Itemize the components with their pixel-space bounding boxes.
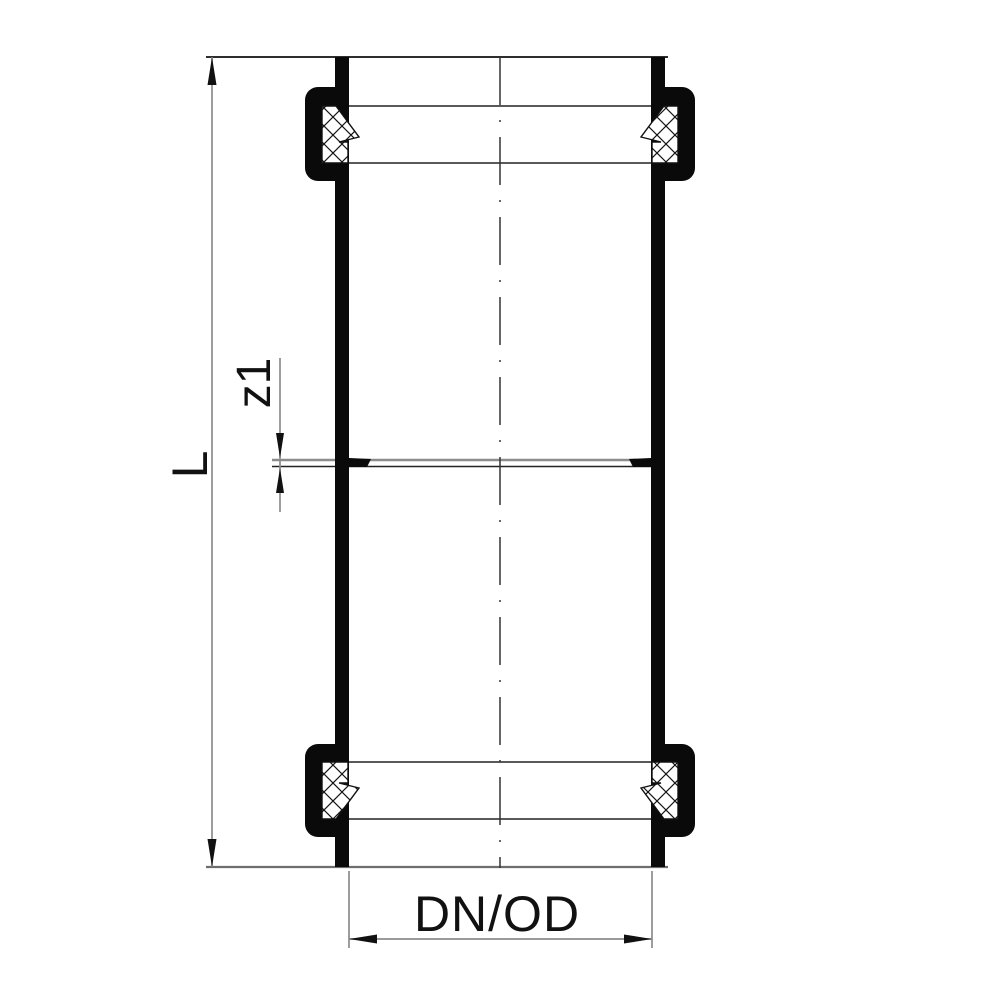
dimension-z1: z1	[228, 358, 284, 512]
dimension-dn-od: DN/OD	[349, 871, 652, 948]
l-arrow-top	[208, 57, 217, 85]
drawing-canvas: L z1 DN/OD	[0, 0, 1000, 1000]
label-overall-length: L	[162, 450, 218, 479]
gasket-bottom-right	[641, 762, 678, 819]
z1-arrow-lower	[276, 468, 284, 493]
z1-arrow-upper	[276, 433, 284, 458]
dnod-arrow-right	[624, 935, 652, 944]
l-arrow-bottom	[208, 839, 217, 867]
dnod-arrow-left	[349, 935, 377, 944]
stop-ridge-left	[349, 458, 371, 467]
stop-ridge-right	[629, 458, 651, 467]
label-mid-stop-gap: z1	[228, 358, 281, 409]
dimension-L: L	[162, 57, 218, 867]
gasket-bottom-left	[322, 762, 359, 819]
label-nominal-diameter: DN/OD	[414, 886, 580, 942]
gasket-top-right	[641, 106, 678, 163]
coupling-drawing: L z1 DN/OD	[0, 0, 1000, 1000]
gasket-top-left	[322, 106, 359, 163]
